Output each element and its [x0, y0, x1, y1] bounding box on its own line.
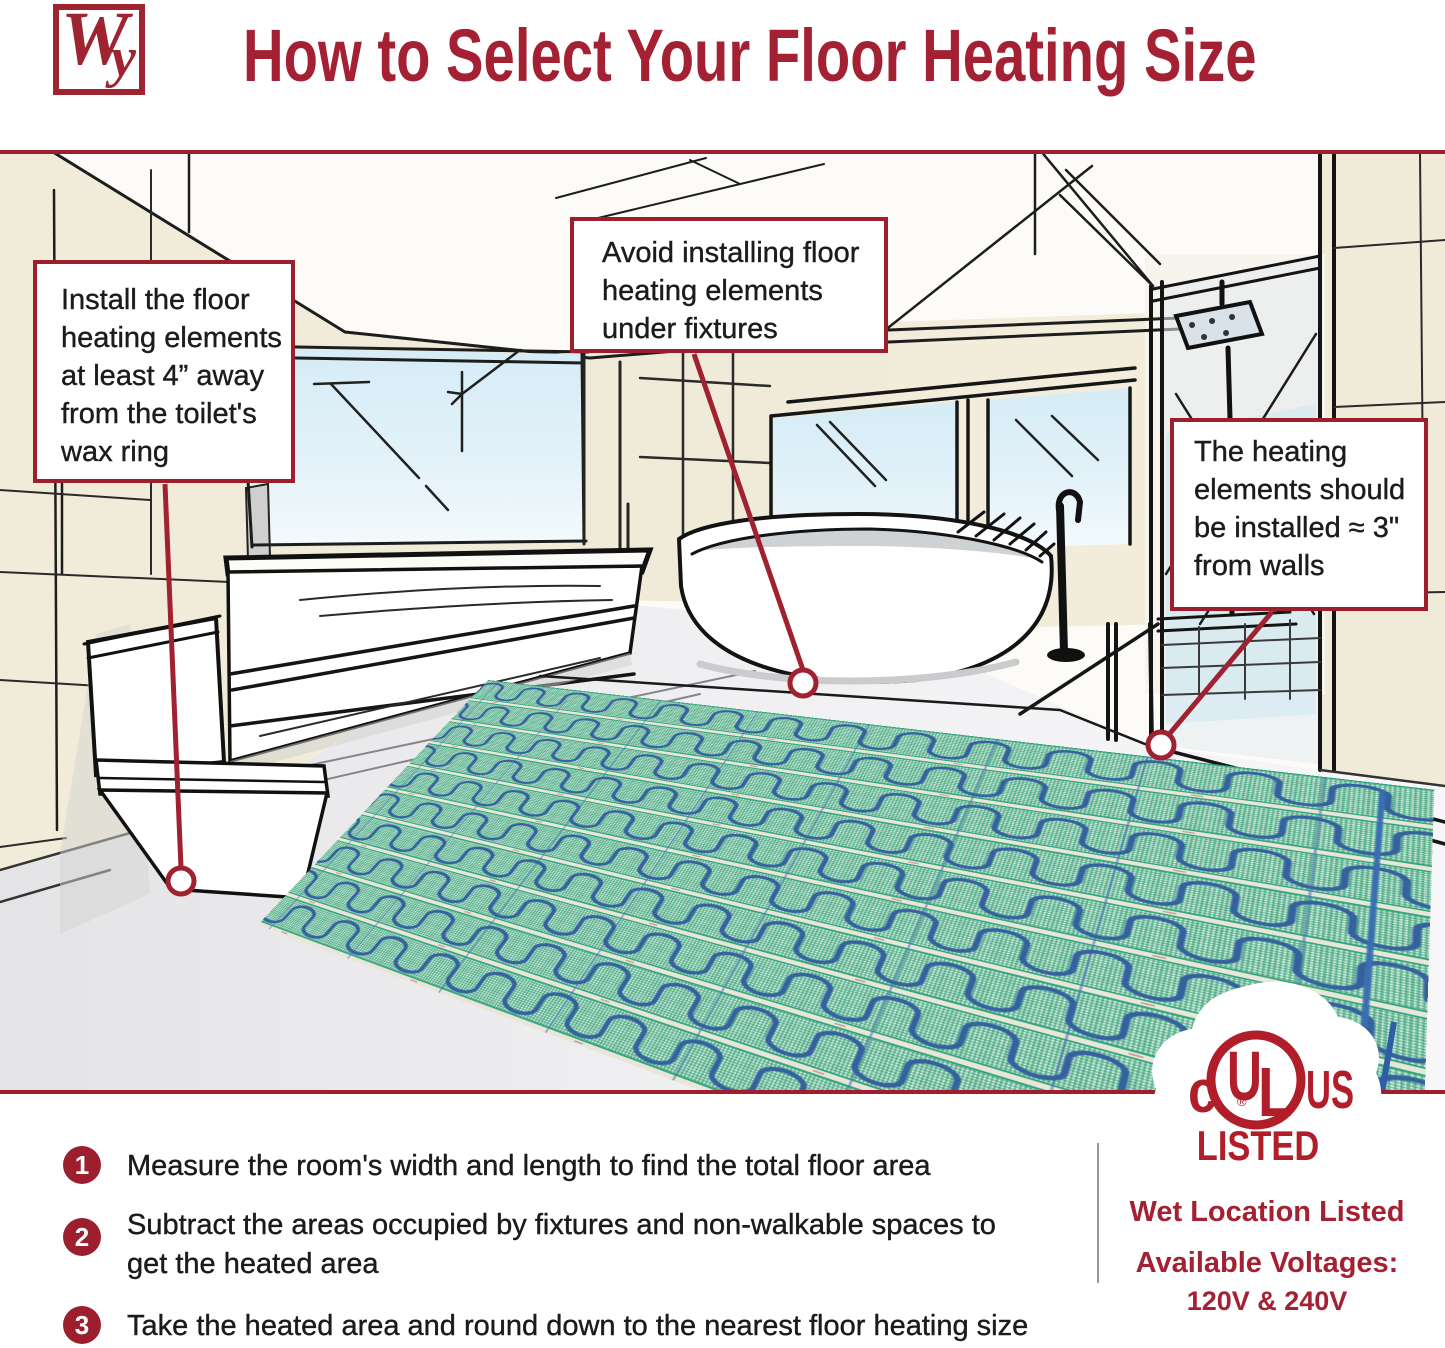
svg-text:®: ®	[1237, 1094, 1247, 1109]
svg-text:c: c	[1188, 1058, 1217, 1125]
svg-text:LISTED: LISTED	[1197, 1123, 1319, 1170]
svg-text:US: US	[1306, 1059, 1354, 1120]
svg-text:L: L	[1258, 1054, 1292, 1131]
